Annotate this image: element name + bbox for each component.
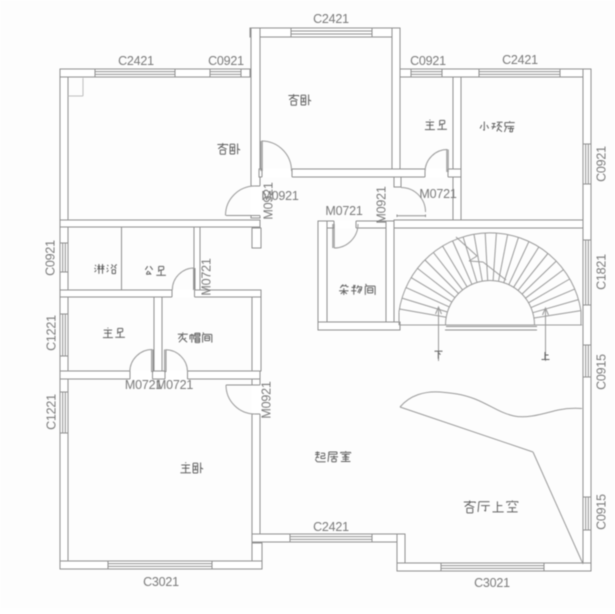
svg-text:C2421: C2421 (313, 520, 349, 534)
svg-text:C0915: C0915 (594, 494, 608, 530)
svg-text:M0921: M0921 (261, 182, 275, 219)
svg-text:C2421: C2421 (313, 12, 349, 26)
svg-text:C0915: C0915 (594, 354, 608, 390)
svg-text:M0721: M0721 (199, 258, 213, 295)
svg-text:M0721: M0721 (325, 204, 362, 218)
svg-text:C0921: C0921 (594, 146, 608, 182)
svg-text:C0921: C0921 (208, 54, 244, 68)
svg-text:M0921: M0921 (374, 186, 388, 223)
svg-text:C3021: C3021 (474, 576, 510, 590)
svg-text:M0721: M0721 (156, 378, 193, 392)
svg-text:C2421: C2421 (118, 54, 154, 68)
svg-text:C2421: C2421 (502, 53, 538, 67)
svg-text:C1221: C1221 (44, 394, 58, 430)
svg-text:C0921: C0921 (43, 240, 57, 276)
svg-text:C3021: C3021 (143, 575, 179, 589)
svg-text:M0721: M0721 (419, 187, 456, 201)
svg-text:C1221: C1221 (44, 315, 58, 351)
svg-text:M0921: M0921 (259, 381, 273, 418)
svg-text:C0921: C0921 (410, 54, 446, 68)
svg-text:C1821: C1821 (594, 254, 608, 290)
